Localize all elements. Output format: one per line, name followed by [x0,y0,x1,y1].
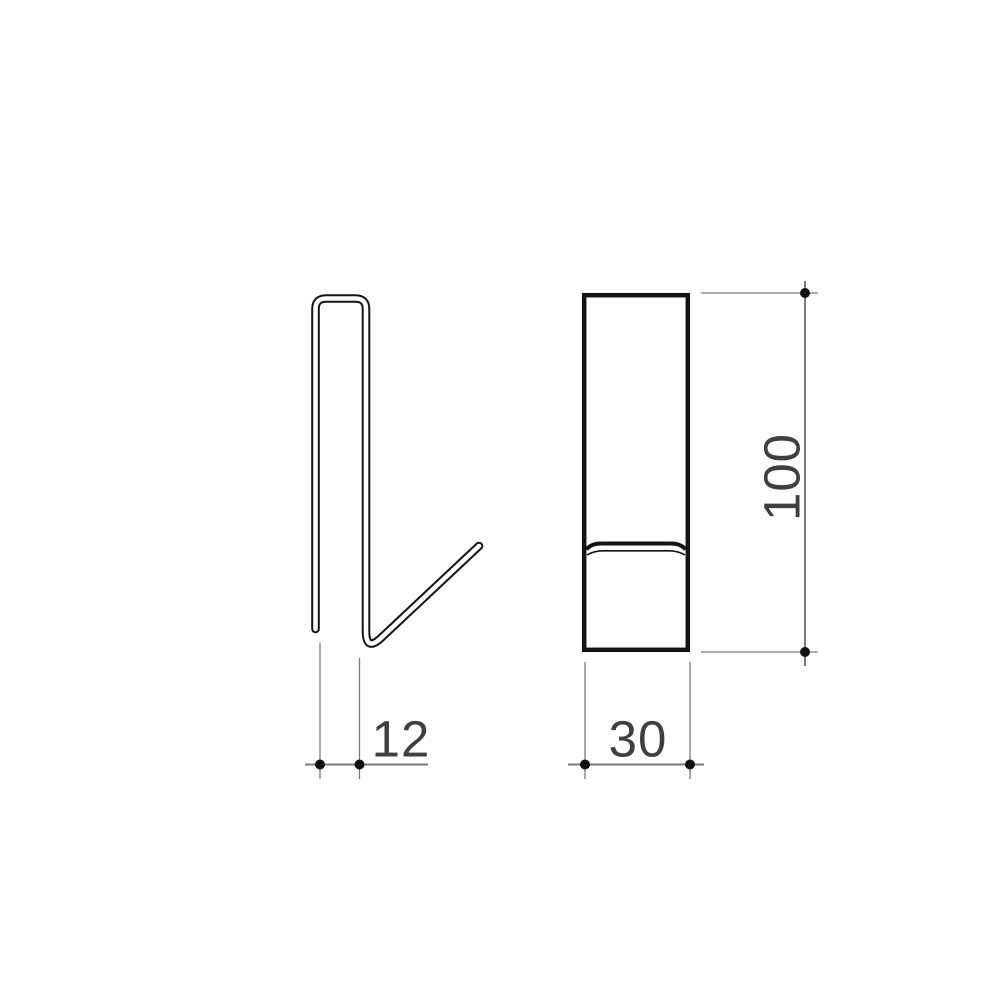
dimension-height: 100 [701,281,818,666]
dimension-label-width: 30 [609,711,668,768]
dimension-dot [800,647,810,657]
dimension-dot [315,760,325,770]
dimension-label-hook-gap: 12 [372,711,431,768]
dimension-label-height: 100 [754,433,811,521]
front-view-body [584,295,688,650]
hook-profile-outline [316,299,480,644]
dimension-dot [355,760,365,770]
dimension-drawing: 12 30 100 [0,0,1000,1000]
dimension-width: 30 [568,662,704,779]
dimension-dot [580,760,590,770]
dimension-dot [685,760,695,770]
front-view [584,295,688,650]
dimension-hook-gap: 12 [305,643,430,779]
drawing-svg: 12 30 100 [0,0,1000,1000]
dimension-dot [800,288,810,298]
hook-profile-core [316,299,480,644]
side-profile-view [316,299,480,644]
